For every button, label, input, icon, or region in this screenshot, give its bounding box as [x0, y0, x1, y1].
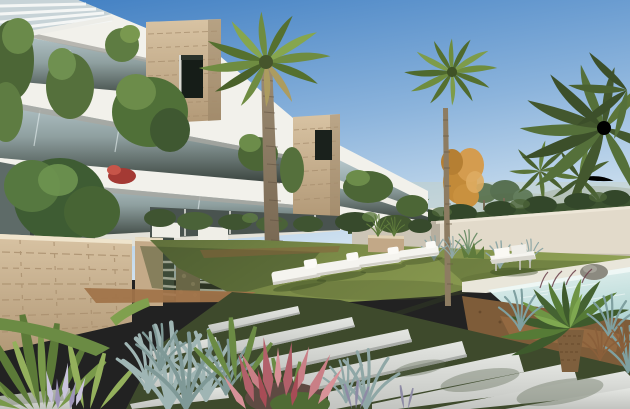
tower-window	[315, 130, 332, 160]
architectural-render: Sunny 3D architectural rendering of a mo…	[0, 0, 630, 409]
tower-window	[181, 55, 203, 98]
